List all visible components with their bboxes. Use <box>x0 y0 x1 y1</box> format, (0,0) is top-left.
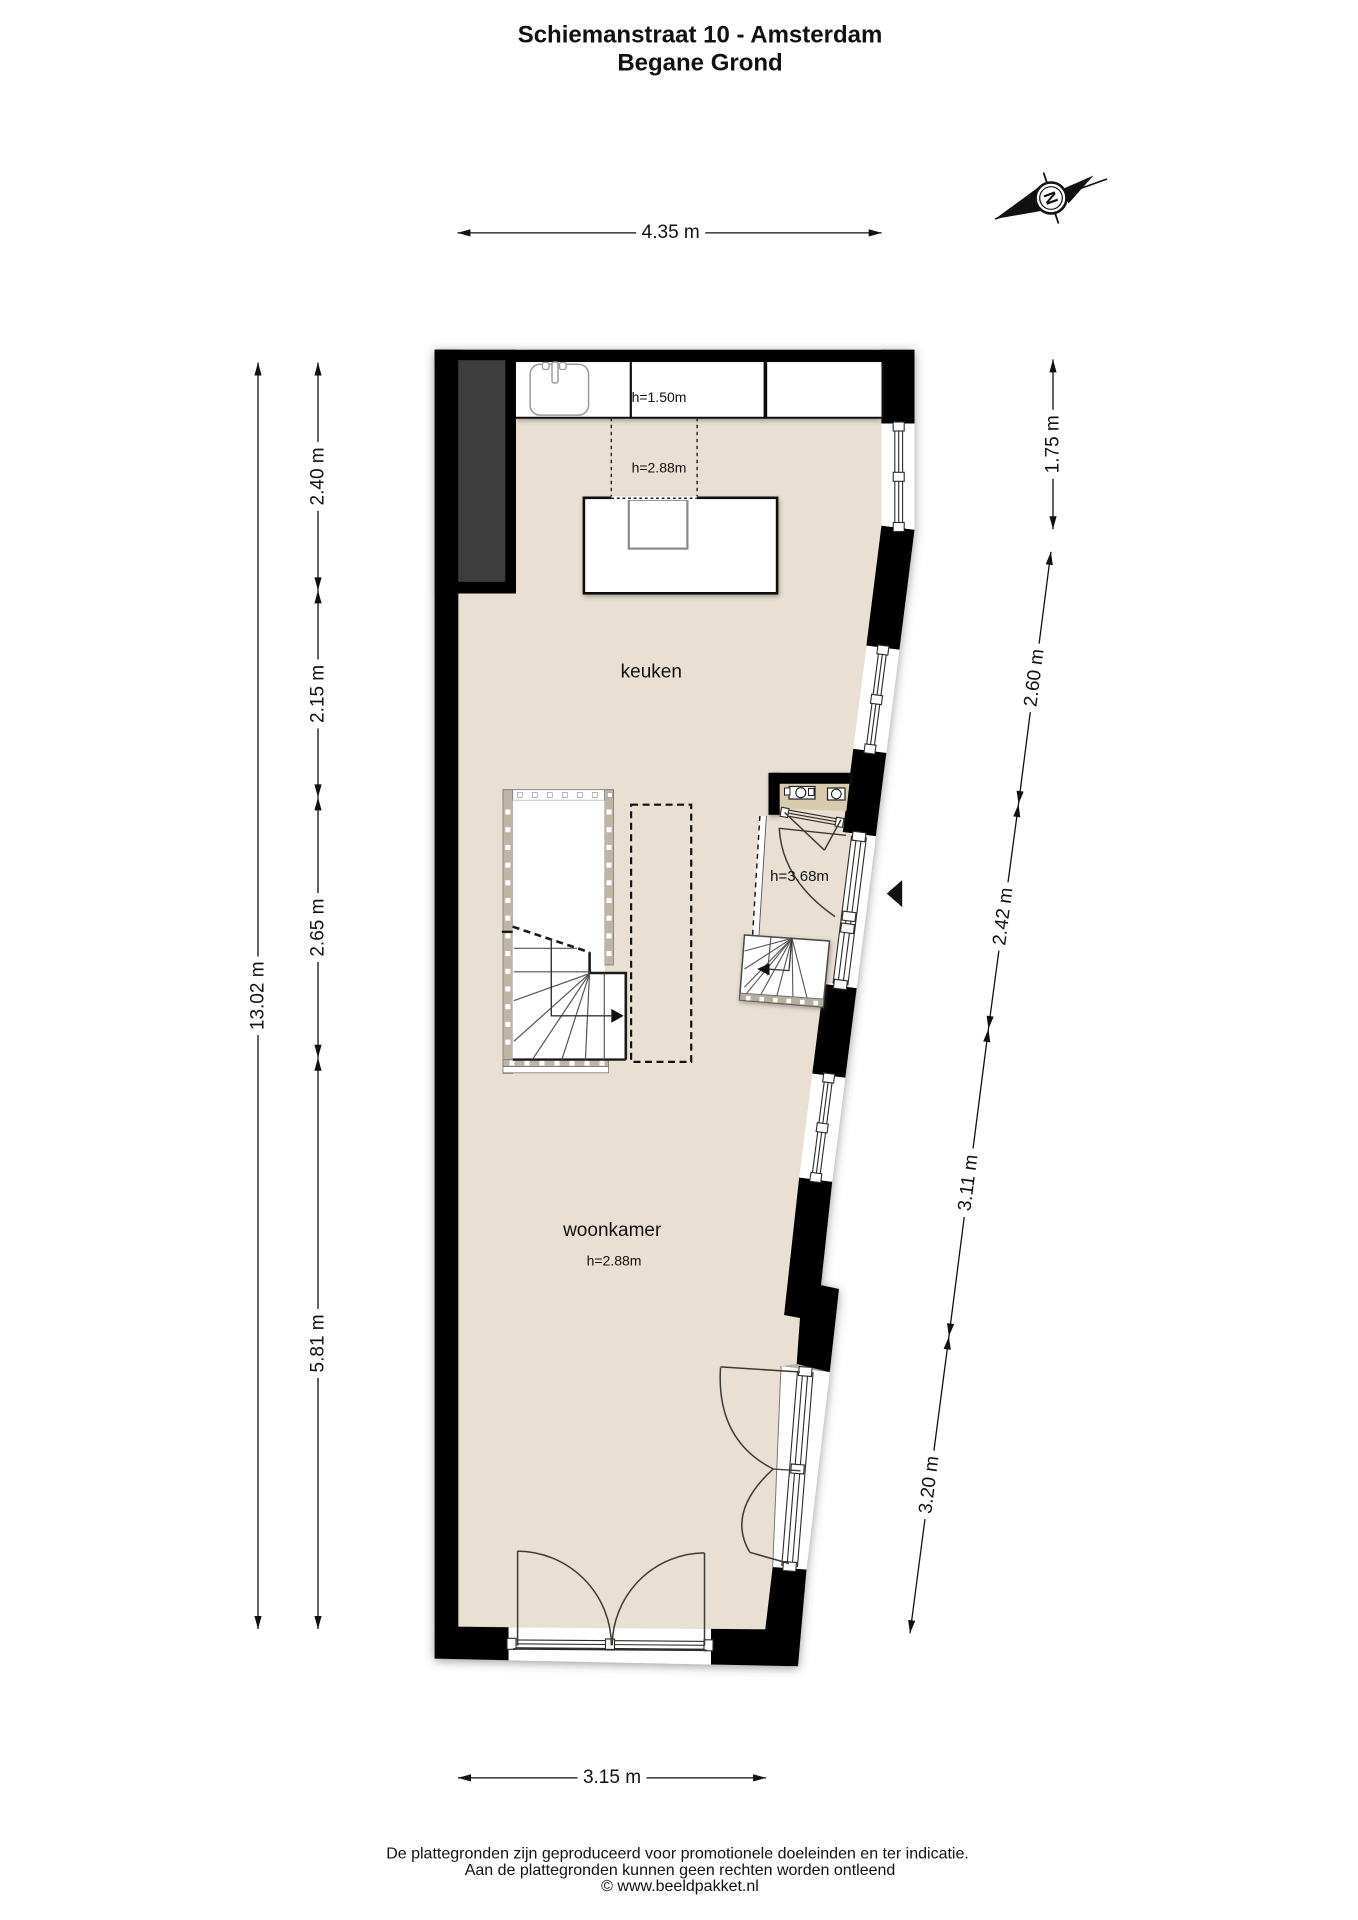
svg-text:De plattegronden zijn geproduc: De plattegronden zijn geproduceerd voor … <box>386 1845 969 1862</box>
svg-text:keuken: keuken <box>621 661 682 682</box>
svg-text:2.65 m: 2.65 m <box>307 899 328 957</box>
svg-text:h=2.88m: h=2.88m <box>587 1252 642 1268</box>
svg-text:4.35 m: 4.35 m <box>642 222 700 243</box>
svg-text:13.02 m: 13.02 m <box>247 961 268 1030</box>
svg-text:5.81 m: 5.81 m <box>307 1314 328 1372</box>
svg-text:1.75 m: 1.75 m <box>1042 415 1063 473</box>
svg-text:Schiemanstraat 10 - Amsterdam: Schiemanstraat 10 - Amsterdam <box>518 21 883 48</box>
svg-text:Begane Grond: Begane Grond <box>617 49 782 76</box>
svg-text:2.15 m: 2.15 m <box>307 665 328 723</box>
svg-text:h=2.88m: h=2.88m <box>632 460 687 476</box>
svg-text:woonkamer: woonkamer <box>562 1220 662 1241</box>
svg-text:3.15 m: 3.15 m <box>583 1767 641 1788</box>
svg-text:h=3.68m: h=3.68m <box>770 868 829 885</box>
svg-text:Aan de plattegronden kunnen ge: Aan de plattegronden kunnen geen rechten… <box>465 1862 896 1879</box>
svg-text:h=1.50m: h=1.50m <box>632 389 687 405</box>
svg-text:2.40 m: 2.40 m <box>307 447 328 505</box>
svg-text:© www.beeldpakket.nl: © www.beeldpakket.nl <box>601 1878 759 1895</box>
